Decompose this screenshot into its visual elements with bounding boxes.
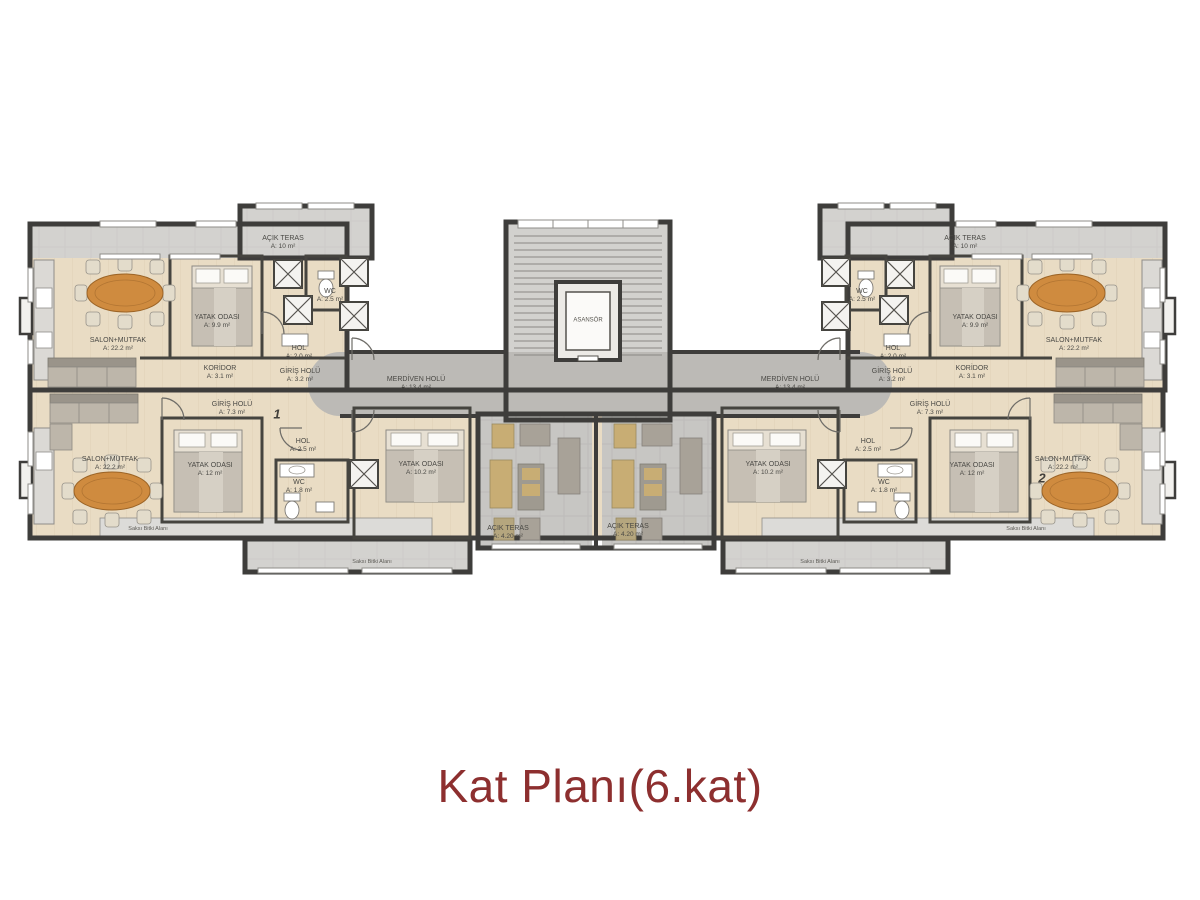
- room-label-wc-top-right: WC A: 2.5 m²: [849, 288, 875, 304]
- room-name: SALON+MUTFAK: [1035, 456, 1091, 464]
- page-title: Kat Planı(6.kat): [437, 759, 762, 813]
- room-name: AÇIK TERAS: [262, 235, 304, 243]
- room-area: A: 2.5 m²: [290, 446, 316, 454]
- room-area: A: 3.1 m²: [204, 373, 237, 381]
- room-label-acik-teras-center-left: AÇIK TERAS A: 4.20 m²: [487, 525, 529, 541]
- room-label-wc-bottom-left: WC A: 1.8 m²: [286, 479, 312, 495]
- room-area: A: 7.3 m²: [910, 409, 950, 417]
- room-name: HOL: [286, 345, 312, 353]
- room-name: GİRİŞ HOLÜ: [280, 368, 320, 376]
- room-name: HOL: [880, 345, 906, 353]
- room-area: A: 22.2 m²: [82, 464, 138, 472]
- room-area: A: 3.2 m²: [872, 376, 912, 384]
- room-name: YATAK ODASI: [194, 314, 239, 322]
- room-label-asansor: ASANSÖR: [573, 317, 602, 324]
- unit-number-2: 2: [1038, 471, 1045, 486]
- room-name: WC: [871, 479, 897, 487]
- floor-plan-drawing: [0, 0, 1200, 680]
- room-name: KORİDOR: [956, 365, 989, 373]
- room-area: A: 4.20 m²: [487, 533, 529, 541]
- balcony-strip-label: Saksı Bitki Alanı: [1006, 526, 1045, 532]
- room-name: GİRİŞ HOLÜ: [872, 368, 912, 376]
- room-area: A: 2.5 m²: [855, 446, 881, 454]
- room-area: A: 3.1 m²: [956, 373, 989, 381]
- room-label-hol-bottom-left: HOL A: 2.5 m²: [290, 438, 316, 454]
- room-label-yatak1-bottom-right: YATAK ODASI A: 12 m²: [949, 462, 994, 478]
- room-area: A: 2.5 m²: [317, 296, 343, 304]
- room-name: YATAK ODASI: [745, 461, 790, 469]
- room-name: WC: [317, 288, 343, 296]
- room-area: A: 10 m²: [944, 243, 986, 251]
- room-label-acik-teras-center-right: AÇIK TERAS A: 4.20 m²: [607, 523, 649, 539]
- room-label-hol-bottom-right: HOL A: 2.5 m²: [855, 438, 881, 454]
- room-label-giris-bottom-left: GİRİŞ HOLÜ A: 7.3 m²: [212, 401, 252, 417]
- room-area: A: 12 m²: [949, 470, 994, 478]
- room-area: A: 4.20 m²: [607, 531, 649, 539]
- room-label-koridor-top-left: KORİDOR A: 3.1 m²: [204, 365, 237, 381]
- room-area: A: 9.9 m²: [194, 322, 239, 330]
- room-name: SALON+MUTFAK: [90, 337, 146, 345]
- room-name: MERDİVEN HOLÜ: [387, 376, 445, 384]
- room-label-merdiven-holu-left: MERDİVEN HOLÜ A: 13.4 m²: [387, 376, 445, 392]
- room-label-merdiven-holu-right: MERDİVEN HOLÜ A: 13.4 m²: [761, 376, 819, 392]
- room-area: A: 9.9 m²: [952, 322, 997, 330]
- room-name: YATAK ODASI: [187, 462, 232, 470]
- unit-number-1: 1: [273, 407, 280, 422]
- room-label-yatak2-bottom-left: YATAK ODASI A: 10.2 m²: [398, 461, 443, 477]
- balcony-strip-label: Saksı Bitki Alanı: [128, 526, 167, 532]
- room-area: A: 10.2 m²: [745, 469, 790, 477]
- room-name: HOL: [855, 438, 881, 446]
- room-area: A: 13.4 m²: [387, 384, 445, 392]
- room-area: A: 13.4 m²: [761, 384, 819, 392]
- room-label-wc-bottom-right: WC A: 1.8 m²: [871, 479, 897, 495]
- room-label-koridor-top-right: KORİDOR A: 3.1 m²: [956, 365, 989, 381]
- room-area: A: 22.2 m²: [90, 345, 146, 353]
- room-label-salon-top-right: SALON+MUTFAK A: 22.2 m²: [1046, 337, 1102, 353]
- room-name: WC: [286, 479, 312, 487]
- room-name: MERDİVEN HOLÜ: [761, 376, 819, 384]
- room-name: GİRİŞ HOLÜ: [212, 401, 252, 409]
- room-label-acik-teras-top-right: AÇIK TERAS A: 10 m²: [944, 235, 986, 251]
- room-area: A: 12 m²: [187, 470, 232, 478]
- room-area: A: 2.0 m²: [880, 353, 906, 361]
- balcony-strip-label: Saksı Bitki Alanı: [800, 559, 839, 565]
- room-label-giris-top-right: GİRİŞ HOLÜ A: 3.2 m²: [872, 368, 912, 384]
- room-name: WC: [849, 288, 875, 296]
- room-area: A: 1.8 m²: [871, 487, 897, 495]
- room-name: YATAK ODASI: [398, 461, 443, 469]
- balcony-strip-label: Saksı Bitki Alanı: [352, 559, 391, 565]
- room-label-giris-bottom-right: GİRİŞ HOLÜ A: 7.3 m²: [910, 401, 950, 417]
- room-name: AÇIK TERAS: [487, 525, 529, 533]
- room-label-acik-teras-top-left: AÇIK TERAS A: 10 m²: [262, 235, 304, 251]
- room-name: YATAK ODASI: [949, 462, 994, 470]
- room-label-yatak1-bottom-left: YATAK ODASI A: 12 m²: [187, 462, 232, 478]
- room-label-yatak-top-left: YATAK ODASI A: 9.9 m²: [194, 314, 239, 330]
- room-name: SALON+MUTFAK: [82, 456, 138, 464]
- room-name: YATAK ODASI: [952, 314, 997, 322]
- room-name: ASANSÖR: [573, 317, 602, 324]
- room-area: A: 3.2 m²: [280, 376, 320, 384]
- room-label-hol-top-right: HOL A: 2.0 m²: [880, 345, 906, 361]
- room-area: A: 1.8 m²: [286, 487, 312, 495]
- room-area: A: 10 m²: [262, 243, 304, 251]
- room-name: HOL: [290, 438, 316, 446]
- room-label-hol-top-left: HOL A: 2.0 m²: [286, 345, 312, 361]
- room-label-salon-bottom-left: SALON+MUTFAK A: 22.2 m²: [82, 456, 138, 472]
- floor-plan-page: AÇIK TERAS A: 10 m² SALON+MUTFAK A: 22.2…: [0, 0, 1200, 900]
- room-label-yatak2-bottom-right: YATAK ODASI A: 10.2 m²: [745, 461, 790, 477]
- room-label-yatak-top-right: YATAK ODASI A: 9.9 m²: [952, 314, 997, 330]
- room-label-giris-top-left: GİRİŞ HOLÜ A: 3.2 m²: [280, 368, 320, 384]
- room-area: A: 22.2 m²: [1046, 345, 1102, 353]
- room-area: A: 2.0 m²: [286, 353, 312, 361]
- room-name: KORİDOR: [204, 365, 237, 373]
- room-area: A: 7.3 m²: [212, 409, 252, 417]
- room-label-salon-top-left: SALON+MUTFAK A: 22.2 m²: [90, 337, 146, 353]
- room-name: GİRİŞ HOLÜ: [910, 401, 950, 409]
- room-name: SALON+MUTFAK: [1046, 337, 1102, 345]
- room-area: A: 10.2 m²: [398, 469, 443, 477]
- room-name: AÇIK TERAS: [607, 523, 649, 531]
- room-area: A: 2.5 m²: [849, 296, 875, 304]
- room-label-wc-top-left: WC A: 2.5 m²: [317, 288, 343, 304]
- room-name: AÇIK TERAS: [944, 235, 986, 243]
